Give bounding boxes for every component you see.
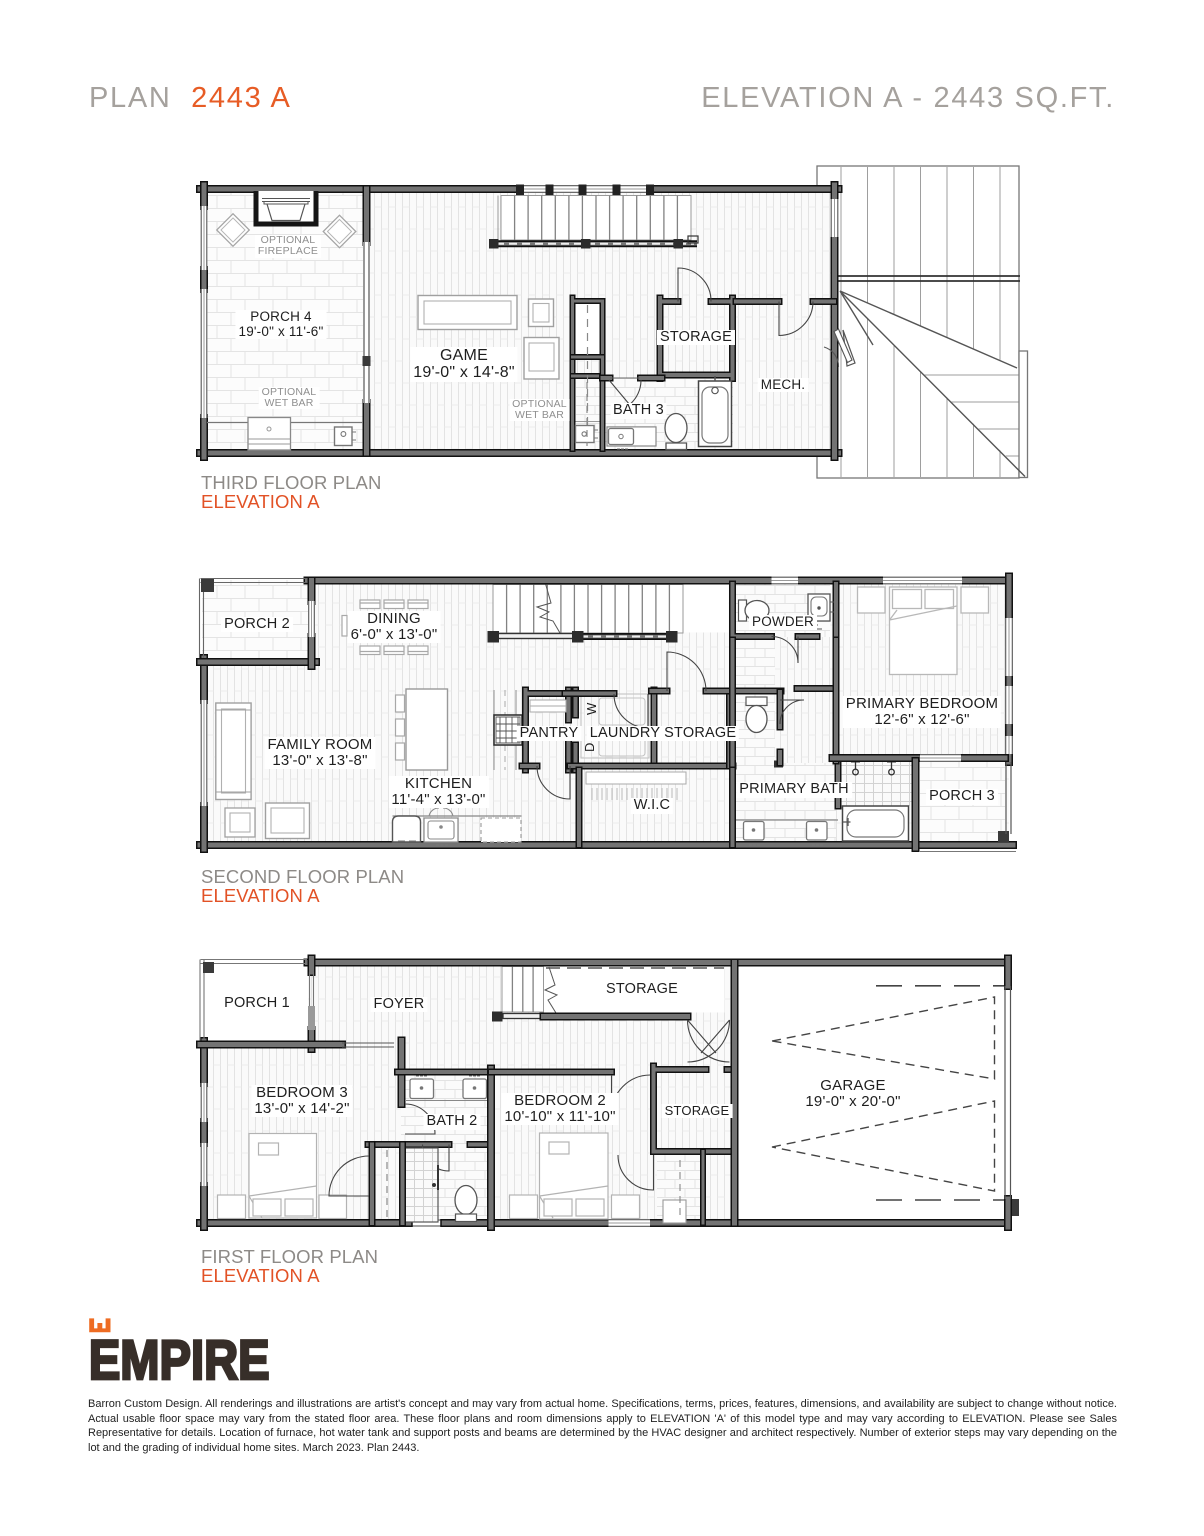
- svg-text:EMPIRE: EMPIRE: [89, 1328, 270, 1388]
- svg-text:W: W: [584, 702, 599, 715]
- svg-text:D: D: [582, 743, 597, 752]
